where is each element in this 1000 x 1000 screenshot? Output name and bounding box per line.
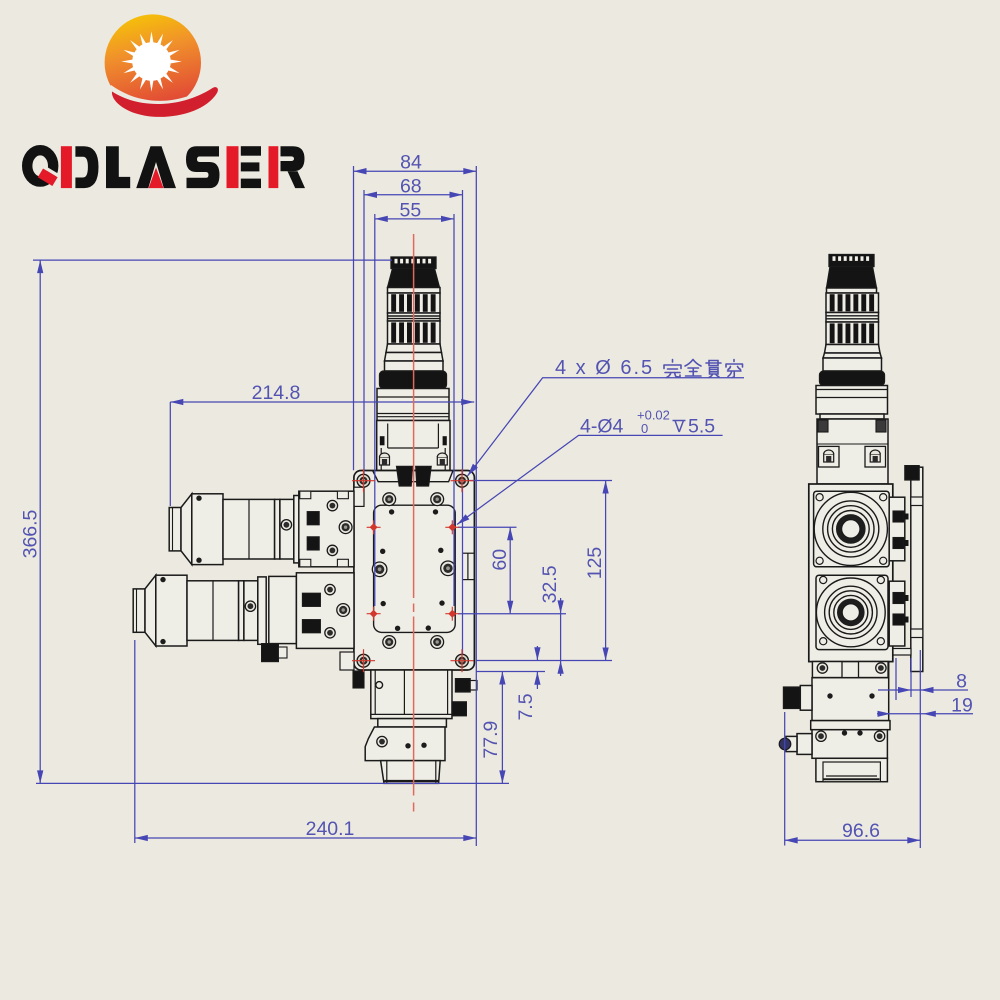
svg-text:8: 8: [956, 671, 967, 693]
svg-text:7.5: 7.5: [515, 693, 537, 720]
svg-text:240.1: 240.1: [306, 818, 355, 840]
svg-text:84: 84: [400, 152, 422, 174]
svg-text:60: 60: [489, 549, 511, 571]
svg-text:214.8: 214.8: [252, 382, 301, 404]
svg-text:0: 0: [641, 421, 648, 436]
svg-text:366.5: 366.5: [20, 509, 42, 558]
svg-text:77.9: 77.9: [480, 721, 502, 759]
svg-text:96.6: 96.6: [842, 820, 880, 842]
svg-text:19: 19: [951, 694, 973, 716]
svg-text:68: 68: [400, 175, 422, 197]
svg-text:125: 125: [584, 547, 606, 580]
svg-text:5.5: 5.5: [688, 416, 715, 438]
svg-text:32.5: 32.5: [539, 565, 561, 603]
svg-text:55: 55: [400, 199, 422, 221]
svg-text:4 x Ø 6.5: 4 x Ø 6.5: [555, 357, 654, 379]
svg-text:4-Ø4: 4-Ø4: [580, 416, 624, 438]
